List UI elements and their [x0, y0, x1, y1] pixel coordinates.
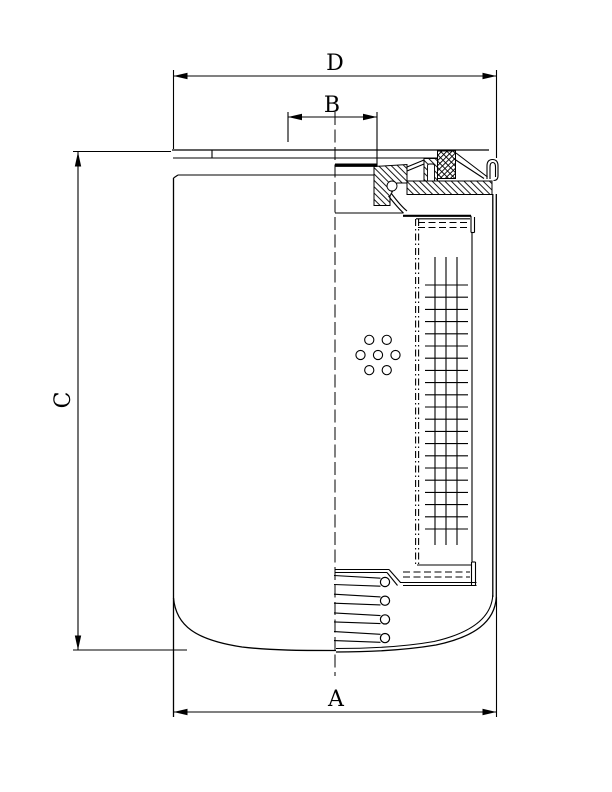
bypass-holes	[356, 335, 400, 375]
bypass-hole	[382, 335, 391, 344]
spring-coil-line	[334, 622, 381, 624]
spring-seat-diagonal1	[389, 570, 401, 583]
spring-coil-line	[334, 641, 381, 643]
b-arrow-left-icon	[288, 114, 302, 120]
spring-coil-line	[334, 585, 381, 587]
dimension-d-label: D	[326, 51, 344, 76]
thread-relief-circle	[387, 181, 397, 191]
bottom-dome-left	[174, 598, 337, 651]
shoulder-notch	[174, 175, 179, 178]
spring-wire-section	[380, 634, 389, 643]
d-arrow-left-icon	[174, 73, 188, 79]
d-arrow-right-icon	[483, 73, 497, 79]
c-arrow-top-icon	[75, 152, 81, 167]
a-arrow-left-icon	[174, 709, 188, 715]
bypass-hole	[356, 350, 365, 359]
rolled-seam-inner	[490, 163, 496, 180]
drawing-page: D B C A	[0, 0, 612, 792]
cap-slant-lower-left	[407, 164, 424, 171]
a-arrow-right-icon	[483, 709, 497, 715]
spring-coil-line	[334, 594, 381, 597]
b-arrow-right-icon	[363, 114, 377, 120]
bypass-hole	[373, 350, 382, 359]
spring-coil-line	[334, 613, 381, 616]
technical-drawing: D B C A	[0, 0, 612, 792]
gasket-crosshatch	[438, 151, 456, 179]
spring-coil-line	[334, 603, 381, 605]
bypass-hole	[365, 335, 374, 344]
seam-slant-lower	[454, 159, 485, 179]
spring	[334, 576, 390, 643]
bypass-hole	[382, 366, 391, 375]
spring-coil-line	[334, 632, 381, 635]
retainer-slot	[428, 164, 435, 181]
spring-coil-line	[334, 576, 381, 579]
spring-wire-section	[380, 596, 389, 605]
dimension-b: B	[288, 93, 377, 166]
top-end-section	[335, 151, 498, 213]
filter-media-grid	[425, 257, 468, 545]
c-arrow-bottom-icon	[75, 636, 81, 651]
dimension-b-label: B	[324, 93, 340, 118]
bypass-hole	[365, 366, 374, 375]
cap-slant-upper-left	[407, 160, 424, 167]
bypass-hole	[391, 350, 400, 359]
bottom-dome-right-inner	[336, 595, 493, 649]
filter-element	[335, 216, 477, 586]
seam-slant-upper	[456, 153, 488, 177]
inner-dome-curve-inner	[389, 196, 404, 213]
dimension-a-label: A	[327, 687, 345, 712]
top-plate-hatch	[407, 181, 492, 195]
dimension-c-label: C	[51, 392, 76, 409]
spring-wire-section	[380, 615, 389, 624]
dimension-c: C	[51, 152, 187, 651]
spring-wire-section	[380, 577, 389, 586]
